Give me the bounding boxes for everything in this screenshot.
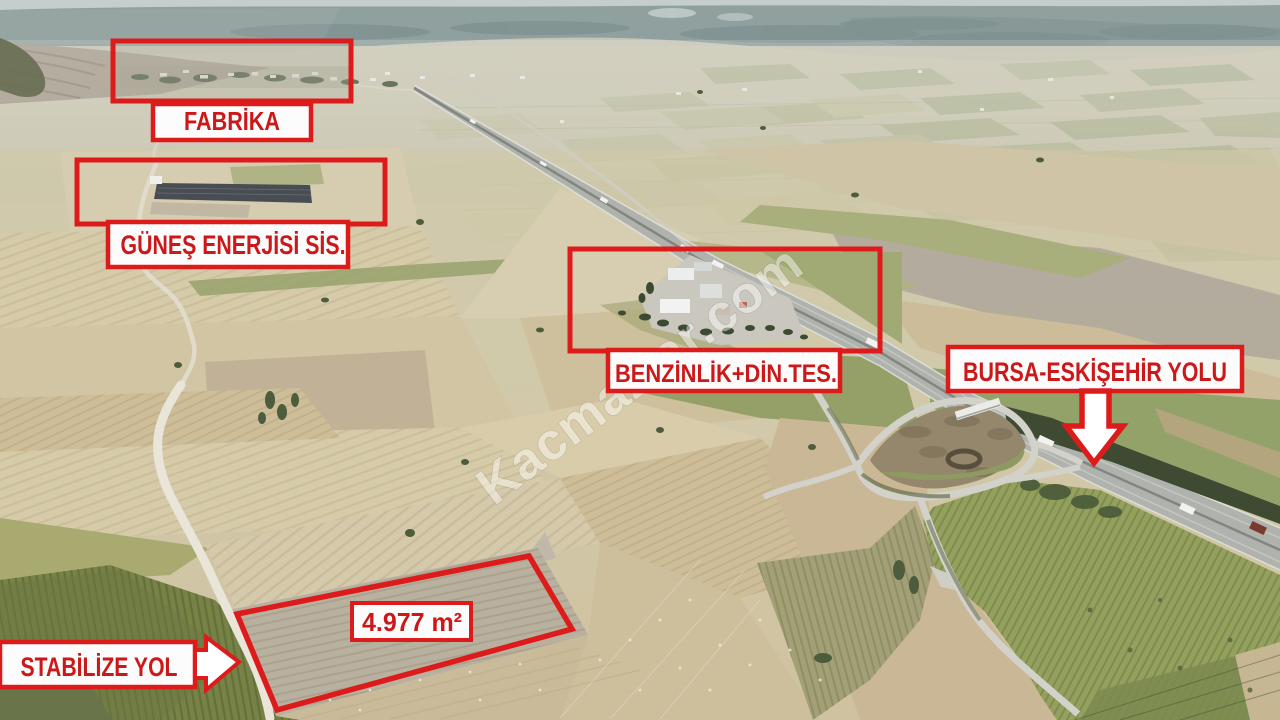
svg-text:BURSA-ESKİŞEHİR YOLU: BURSA-ESKİŞEHİR YOLU [963,357,1227,387]
svg-text:STABİLİZE YOL: STABİLİZE YOL [21,652,178,682]
svg-text:BENZİNLİK+DİN.TES.: BENZİNLİK+DİN.TES. [615,360,837,388]
svg-text:FABRİKA: FABRİKA [184,106,280,136]
svg-text:4.977 m²: 4.977 m² [362,607,462,637]
svg-text:GÜNEŞ ENERJİSİ SİS.: GÜNEŞ ENERJİSİ SİS. [121,230,346,260]
